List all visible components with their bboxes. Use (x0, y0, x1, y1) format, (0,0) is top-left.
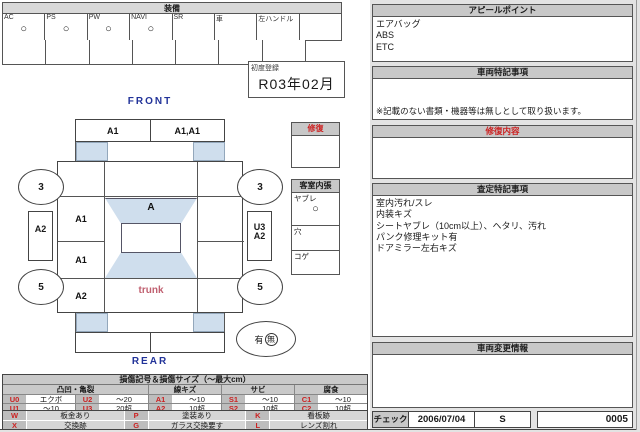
assessment-notes-body: 室内汚れ/スレ 内装キズ シートヤブレ（10cm以上）、ヘタリ、汚れ パンク修理… (373, 196, 632, 256)
legend-value: 塗装あり (149, 411, 247, 420)
legend-row-1: U0 エクボ U2 ～20 A1 ～10 S1 ～10 C1 ～10 (3, 394, 367, 403)
damage-legend-groups: 凸凹・亀裂 線キズ サビ 腐食 (3, 385, 367, 394)
windshield-damage: A (105, 200, 197, 214)
equipment-label: SR (174, 14, 184, 21)
assessment-line: パンク修理キット有 (376, 232, 629, 243)
left-quarter-damage: A2 (58, 279, 104, 313)
rear-bumper (75, 332, 225, 353)
equipment-label: NAVI (131, 14, 147, 21)
appeal-points-body: エアバッグ ABS ETC (373, 17, 632, 55)
assessment-notes-section: 査定特記事項 室内汚れ/スレ 内装キズ シートヤブレ（10cm以上）、ヘタリ、汚… (372, 183, 633, 337)
equipment-cell-ps: PS ○ (45, 14, 87, 40)
equipment-cell-ac: AC ○ (3, 14, 45, 40)
equipment-cell-navi: NAVI ○ (130, 14, 172, 40)
equipment-cell-kuruma: 車 (215, 14, 257, 40)
equipment-title: 装備 (3, 3, 341, 14)
headlight-right (193, 142, 225, 161)
trunk-label: trunk (105, 280, 197, 300)
equipment-label: PW (89, 14, 100, 21)
legend-value: ～20 (100, 395, 149, 403)
vehicle-notes-title: 車両特記事項 (373, 67, 632, 79)
left-fender-damage: A1 (58, 197, 104, 241)
assessment-line: ドアミラー左右キズ (376, 243, 629, 254)
legend-value: ～10 (246, 395, 295, 403)
damage-legend-extra-table: W 板金あり P 塗装あり K 看板跡 X 交換跡 G ガラス交換要す L レン… (2, 410, 368, 430)
appeal-line: エアバッグ (376, 19, 629, 30)
wheel-front-right: 3 (237, 169, 283, 205)
assessment-line: 室内汚れ/スレ (376, 198, 629, 209)
repair-box: 修復 (291, 122, 340, 168)
check-label: チェック (373, 412, 409, 427)
legend-code: A1 (149, 395, 173, 403)
vehicle-notes-section: 車両特記事項 ※記載のない書類・機器等は無しとして取り扱います。 (372, 66, 633, 120)
wheel-rear-right: 5 (237, 269, 283, 305)
equipment-cell-blank (300, 14, 341, 40)
legend-value: ～10 (319, 395, 367, 403)
car-body-diagram: A trunk A1 A1 A2 (57, 161, 243, 313)
cabin-row-tear: ヤブレ ○ (292, 193, 339, 226)
cabin-row-hole: 穴 (292, 226, 339, 251)
damage-legend-table: 損傷記号＆損傷サイズ（～最大cm） 凸凹・亀裂 線キズ サビ 腐食 U0 エクボ… (2, 374, 368, 413)
appeal-line: ABS (376, 30, 629, 41)
repair-content-section: 修復内容 (372, 125, 633, 179)
equipment-label: PS (46, 14, 55, 21)
body-connector-line (75, 313, 76, 332)
first-registration-label: 初度登録 (251, 63, 279, 73)
legend-value: 看板跡 (270, 411, 367, 420)
legend-extra-row-1: W 板金あり P 塗装あり K 看板跡 (3, 411, 367, 420)
front-label: FRONT (75, 96, 225, 107)
assessment-notes-title: 査定特記事項 (373, 184, 632, 196)
appeal-line: ETC (376, 42, 629, 53)
right-side-panel: U3 A2 (247, 211, 272, 261)
legend-code: P (125, 411, 149, 420)
vehicle-change-body (373, 355, 632, 359)
equipment-table: 装備 AC ○ PS ○ PW ○ NAVI ○ SR 車 (2, 2, 342, 41)
check-grade: S (475, 412, 530, 427)
rear-window (105, 253, 197, 278)
headlight-left (76, 142, 108, 161)
left-side-panel: A2 (28, 211, 53, 261)
appeal-points-section: アピールポイント エアバッグ ABS ETC (372, 4, 633, 62)
right-side-damage-bottom: A2 (248, 232, 271, 241)
equipment-cell-lefthandle: 左ハンドル (257, 14, 299, 40)
assessment-line: シートヤブレ（10cm以上）、ヘタリ、汚れ (376, 221, 629, 232)
equipment-cell-pw: PW ○ (88, 14, 130, 40)
legend-code: K (246, 411, 270, 420)
auction-sheet: 装備 AC ○ PS ○ PW ○ NAVI ○ SR 車 (0, 0, 640, 432)
circle-mark-icon: ○ (88, 23, 129, 35)
front-bumper: A1 A1,A1 (75, 119, 225, 142)
legend-code: W (3, 411, 27, 420)
sheet-bottom-border (0, 429, 637, 430)
appeal-points-title: アピールポイント (373, 5, 632, 17)
circle-mark-icon: ○ (45, 23, 86, 35)
taillight-right (193, 313, 225, 332)
equipment-label: 左ハンドル (258, 14, 293, 24)
legend-code: S1 (222, 395, 246, 403)
cabin-row-label: コゲ (294, 251, 309, 262)
roof (121, 223, 181, 253)
legend-group-corrosion: 腐食 (295, 385, 367, 394)
vehicle-change-title: 車両変更情報 (373, 343, 632, 355)
body-line (197, 162, 198, 312)
vehicle-change-section: 車両変更情報 (372, 342, 633, 408)
front-bumper-right-damage: A1,A1 (151, 120, 225, 141)
wheel-rear-left: 5 (18, 269, 64, 305)
cabin-row-label: 穴 (294, 226, 302, 237)
cabin-row-burn: コゲ (292, 251, 339, 275)
legend-group-dent: 凸凹・亀裂 (3, 385, 149, 394)
legend-code: C1 (295, 395, 319, 403)
legend-code: G (125, 421, 149, 429)
right-door-line (198, 241, 244, 242)
legend-value: ～10 (173, 395, 222, 403)
first-registration-box: 初度登録 R03年02月 (248, 61, 345, 98)
legend-group-scratch: 線キズ (149, 385, 222, 394)
legend-value: 板金あり (27, 411, 125, 420)
equipment-label: AC (4, 14, 14, 21)
circle-mark-icon: ○ (3, 23, 44, 35)
repair-content-body (373, 138, 632, 142)
legend-value: レンズ割れ (270, 421, 367, 429)
legend-value: ガラス交換要す (149, 421, 247, 429)
legend-group-rust: サビ (222, 385, 295, 394)
equipment-cell-sr: SR (173, 14, 215, 40)
record-book-status: 有 無 (236, 321, 296, 357)
repair-content-title: 修復内容 (373, 126, 632, 138)
record-book-prefix: 有 (254, 333, 263, 346)
sheet-number: 0005 (537, 411, 633, 428)
damage-legend-title: 損傷記号＆損傷サイズ（～最大cm） (3, 375, 367, 385)
rear-label: REAR (75, 356, 225, 367)
legend-value: エクボ (27, 395, 76, 403)
wheel-front-left: 3 (18, 169, 64, 205)
circle-mark-icon: ○ (130, 23, 171, 35)
legend-code: U0 (3, 395, 27, 403)
check-row: チェック 2006/07/04 S (372, 411, 531, 428)
vehicle-notes-disclaimer: ※記載のない書類・機器等は無しとして取り扱います。 (376, 106, 586, 117)
legend-value: 交換跡 (27, 421, 125, 429)
legend-extra-row-2: X 交換跡 G ガラス交換要す L レンズ割れ (3, 420, 367, 429)
left-door-damage: A1 (58, 242, 104, 278)
sheet-right-border (636, 0, 637, 430)
first-registration-value: R03年02月 (249, 74, 344, 94)
front-bumper-left-damage: A1 (76, 120, 151, 141)
legend-code: U2 (76, 395, 100, 403)
check-date: 2006/07/04 (409, 412, 475, 427)
repair-box-title: 修復 (292, 123, 339, 136)
equipment-header-row: AC ○ PS ○ PW ○ NAVI ○ SR 車 (3, 14, 341, 40)
assessment-line: 内装キズ (376, 209, 629, 220)
legend-code: L (246, 421, 270, 429)
taillight-left (76, 313, 108, 332)
legend-code: X (3, 421, 27, 429)
circle-mark-icon: ○ (292, 203, 339, 215)
cabin-lining-title: 客室内張 (292, 180, 339, 193)
vehicle-notes-body: ※記載のない書類・機器等は無しとして取り扱います。 (373, 79, 632, 119)
equipment-label: 車 (216, 14, 223, 24)
cabin-lining-box: 客室内張 ヤブレ ○ 穴 コゲ (291, 179, 340, 275)
record-book-circled-none: 無 (265, 333, 278, 346)
body-connector-line (224, 313, 225, 332)
